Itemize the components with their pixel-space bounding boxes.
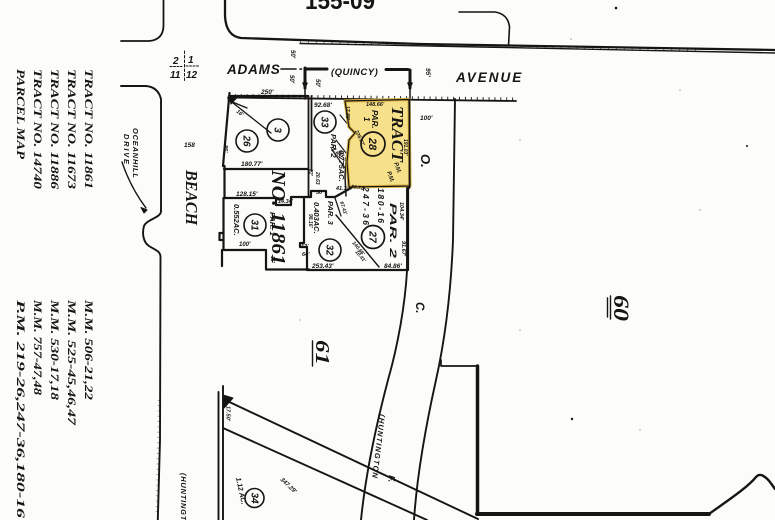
svg-text:100': 100': [239, 242, 251, 248]
svg-text:84.86': 84.86': [384, 263, 402, 270]
svg-text:180.77': 180.77': [241, 161, 263, 168]
svg-text:26: 26: [241, 134, 252, 147]
svg-text:158: 158: [184, 142, 195, 149]
svg-text:DRIVE: DRIVE: [122, 134, 131, 165]
svg-text:253.43': 253.43': [311, 263, 334, 270]
svg-text:14.34': 14.34': [278, 199, 294, 205]
svg-text:128.15': 128.15': [236, 191, 258, 198]
svg-text:50': 50': [288, 75, 294, 84]
svg-text:0.552AC.: 0.552AC.: [232, 204, 241, 236]
svg-text:TRACT NO. 11673: TRACT NO. 11673: [65, 69, 77, 189]
svg-text:OCEANHILL: OCEANHILL: [131, 128, 140, 178]
svg-text:31: 31: [249, 219, 260, 231]
svg-text:15': 15': [269, 256, 275, 264]
svg-text:ADAMS: ADAMS: [226, 62, 281, 77]
svg-text:PAR. 1: PAR. 1: [268, 212, 277, 236]
svg-text:BEACH: BEACH: [182, 169, 201, 226]
svg-text:PAR. 3: PAR. 3: [326, 201, 335, 225]
svg-text:33: 33: [319, 116, 330, 128]
svg-text:61: 61: [311, 340, 333, 365]
svg-text:P.M. 219-26,247-36,180-16: P.M. 219-26,247-36,180-16: [14, 300, 26, 518]
svg-text:20.63: 20.63: [314, 171, 320, 185]
svg-text:32: 32: [324, 244, 335, 256]
svg-text:64': 64': [302, 252, 310, 258]
svg-text:3: 3: [272, 127, 283, 133]
svg-text:TRACT NO. 11886: TRACT NO. 11886: [48, 69, 60, 189]
svg-text:50': 50': [289, 50, 295, 59]
svg-text:91.67': 91.67': [400, 241, 406, 257]
svg-text:M.M. 757-47,48: M.M. 757-47,48: [31, 299, 43, 396]
svg-text:M.M. 525-45,46,47: M.M. 525-45,46,47: [65, 299, 77, 427]
svg-text:34: 34: [249, 492, 260, 504]
svg-text:104.34': 104.34': [398, 202, 404, 221]
svg-text:22': 22': [307, 168, 313, 177]
svg-text:17.88': 17.88': [344, 106, 350, 121]
svg-text:85': 85': [222, 145, 228, 153]
svg-text:100': 100': [420, 115, 433, 122]
svg-text:0.403AC.: 0.403AC.: [312, 202, 321, 234]
svg-text:50': 50': [314, 79, 320, 88]
svg-text:AVENUE: AVENUE: [455, 70, 523, 85]
svg-text:12: 12: [186, 70, 198, 81]
svg-text:60: 60: [609, 295, 634, 321]
svg-text:PAR. 2: PAR. 2: [387, 203, 398, 259]
svg-text:92.68': 92.68': [314, 102, 332, 109]
svg-text:148.66': 148.66': [366, 102, 385, 108]
svg-text:250': 250': [260, 89, 274, 96]
svg-text:M.M. 530-17,18: M.M. 530-17,18: [48, 299, 60, 401]
svg-text:M.M. 506-21,22: M.M. 506-21,22: [82, 299, 94, 401]
svg-text:17.50': 17.50': [225, 406, 231, 422]
svg-text:95': 95': [424, 68, 431, 77]
svg-text:2: 2: [172, 56, 179, 67]
svg-text:C.: C.: [413, 302, 425, 314]
svg-text:1: 1: [188, 55, 194, 66]
svg-text:TRACT NO. 11861: TRACT NO. 11861: [82, 69, 94, 189]
svg-text:12': 12': [301, 244, 309, 250]
svg-text:27: 27: [367, 230, 379, 244]
svg-text:11: 11: [170, 70, 181, 81]
svg-text:O.: O.: [418, 154, 433, 168]
svg-text:PARCEL MAP: PARCEL MAP: [14, 69, 26, 160]
svg-text:155-09: 155-09: [305, 0, 375, 15]
svg-text:28: 28: [366, 137, 378, 151]
svg-text:TRACT NO. 14740: TRACT NO. 14740: [31, 69, 43, 189]
svg-text:1: 1: [362, 117, 371, 122]
svg-text:(QUINCY): (QUINCY): [331, 67, 378, 78]
svg-text:191.03': 191.03': [402, 139, 408, 156]
svg-text:(HUNTINGTON: (HUNTINGTON: [179, 473, 188, 520]
svg-text:50': 50': [316, 190, 324, 196]
